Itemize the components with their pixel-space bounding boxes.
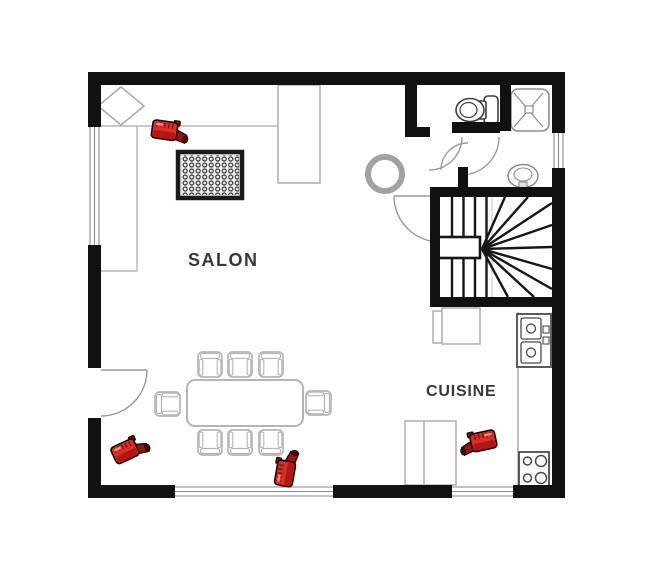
outer-wall-top <box>88 72 565 85</box>
stair-wall-bottom <box>430 297 552 307</box>
outer-wall-right <box>552 168 565 498</box>
shower-icon <box>511 89 549 131</box>
staircase <box>437 197 552 297</box>
floor-plan-svg: SALON CUISINE <box>0 0 666 584</box>
chair <box>228 352 252 377</box>
window-bottom-kitchen <box>452 487 513 496</box>
floor-plan-canvas: SALON CUISINE <box>0 0 666 584</box>
outer-wall-bottom <box>88 485 175 498</box>
kitchen-sink-icon <box>517 314 551 367</box>
outer-wall-left <box>88 245 101 368</box>
chair <box>198 352 222 377</box>
window-left <box>90 127 99 245</box>
under-stair-cabinet <box>442 308 480 344</box>
hatched-rug <box>178 152 242 198</box>
salon-label: SALON <box>188 250 259 270</box>
stair-wall-top <box>430 187 552 197</box>
wc-door-arc <box>429 137 462 170</box>
stair-landing-marker <box>437 237 480 258</box>
window-bottom-large <box>175 487 333 496</box>
outer-wall-right <box>552 85 565 133</box>
chair <box>228 430 252 455</box>
camera-icon[interactable] <box>457 427 497 455</box>
tall-cupboard <box>278 85 320 183</box>
chair <box>259 430 283 455</box>
dining-table <box>187 380 303 426</box>
stair-wall-left <box>430 197 440 307</box>
pedestal-basin-icon <box>368 157 402 191</box>
wc-wall <box>452 122 500 133</box>
window-right <box>554 133 563 168</box>
chair <box>306 391 331 415</box>
stair-wall-stub <box>458 167 468 188</box>
kitchen-lower-counter <box>405 421 456 485</box>
toilet-icon <box>456 96 498 124</box>
cuisine-label: CUISINE <box>426 383 497 400</box>
hand-basin-icon <box>508 165 538 190</box>
wc-wall <box>405 127 430 137</box>
camera-icon[interactable] <box>109 431 151 466</box>
camera-icon[interactable] <box>151 118 190 144</box>
chair <box>259 352 283 377</box>
furniture-layer <box>98 85 518 486</box>
outer-wall-left <box>88 85 101 127</box>
shower-wall <box>500 85 511 131</box>
chair <box>155 392 180 416</box>
corner-cabinet <box>98 87 144 125</box>
outer-wall-bottom <box>333 485 452 498</box>
chair <box>198 430 222 455</box>
entry-door-arc <box>101 370 147 416</box>
stove-icon <box>519 452 549 487</box>
